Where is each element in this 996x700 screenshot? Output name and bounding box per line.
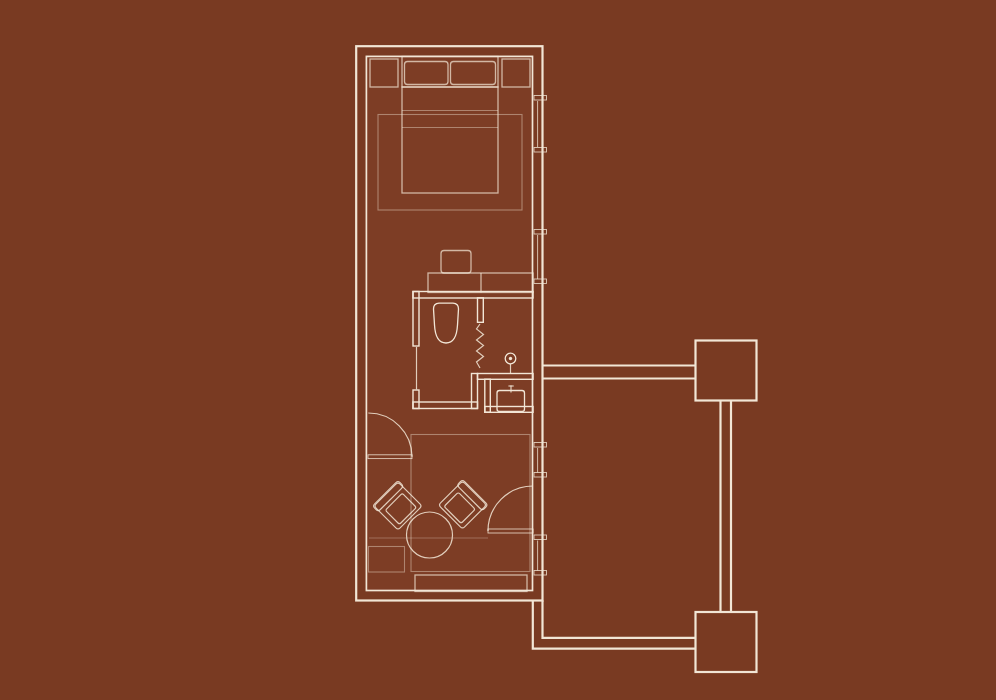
room-shell: [356, 46, 542, 600]
floor-plan-drawing: Hotel suite floor plan drawing on brown …: [0, 0, 996, 700]
floor-plan-canvas: Hotel suite floor plan drawing on brown …: [0, 0, 996, 700]
room-floor: [367, 57, 532, 590]
